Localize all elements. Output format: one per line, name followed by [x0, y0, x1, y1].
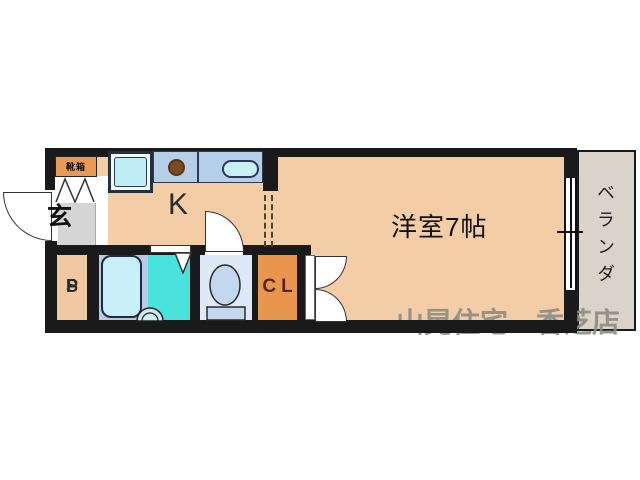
closet: CL	[258, 253, 297, 320]
counter-divider	[197, 152, 199, 182]
main-room-label: 洋室7帖	[391, 207, 487, 244]
entrance-door-arc	[3, 192, 52, 241]
entrance-step	[95, 176, 108, 245]
window-center-line	[570, 178, 572, 288]
pipe-space-label-s: S	[66, 277, 78, 296]
veranda-label: ベランダ	[592, 183, 618, 291]
kitchen-stove-top	[114, 157, 147, 187]
kitchen-stove-unit-icon	[108, 151, 153, 193]
room-boundary-dashed-line	[264, 195, 266, 247]
kitchen-counter	[153, 151, 263, 183]
entrance-label: 玄	[47, 197, 72, 233]
wall-ps-bath	[87, 250, 99, 320]
wall-bottom	[45, 320, 577, 333]
wall-closet-room	[297, 245, 305, 320]
closet-label: CL	[257, 276, 297, 298]
window-icon	[564, 178, 577, 290]
shoe-cabinet-label: 靴箱	[66, 160, 86, 173]
room-boundary-dashed-line	[271, 195, 273, 247]
shoe-cabinet: 靴箱	[55, 156, 97, 177]
kitchen-sink-icon	[222, 160, 259, 178]
closet-door-opening	[305, 255, 315, 320]
kitchen-label: K	[168, 188, 188, 222]
wall-toilet-closet	[252, 250, 258, 320]
stove-burner-icon	[168, 159, 185, 176]
wall-kitchen-stub	[263, 148, 278, 191]
floorplan-canvas: P S CL 山晃住宅 香芝店 靴箱	[0, 0, 640, 480]
window-tick-mark	[557, 231, 583, 233]
washbasin-icon	[136, 304, 164, 322]
pipe-space: P S	[57, 253, 87, 320]
toilet-icon	[204, 263, 248, 321]
shower-icon	[174, 252, 192, 274]
